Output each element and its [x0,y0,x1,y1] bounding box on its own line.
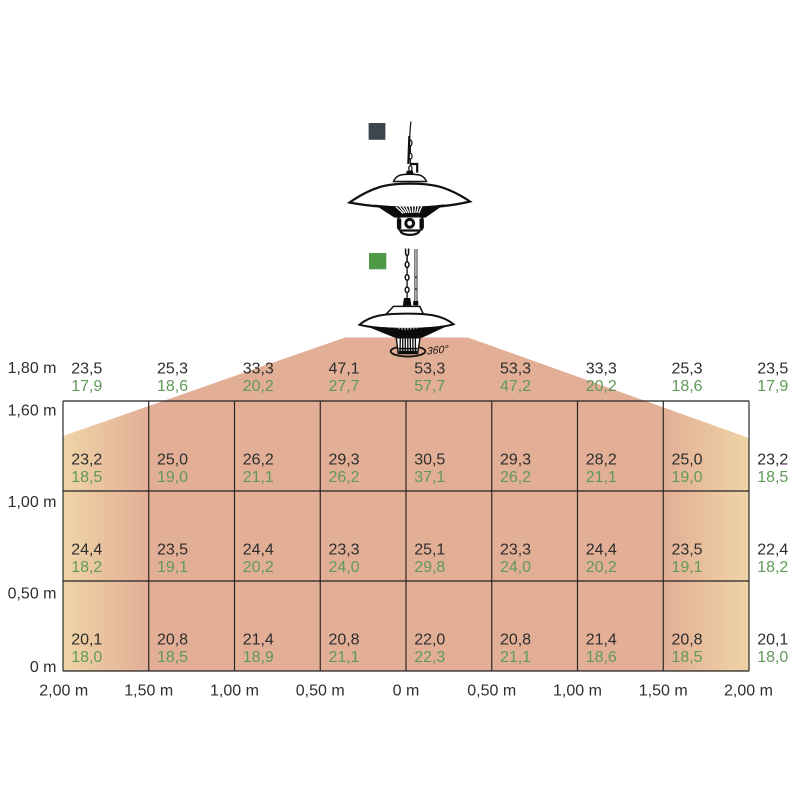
svg-text:23,5: 23,5 [71,361,102,378]
svg-text:18,5: 18,5 [157,649,188,666]
svg-text:21,1: 21,1 [500,649,531,666]
svg-text:20,8: 20,8 [328,632,359,649]
svg-text:27,7: 27,7 [328,378,359,395]
svg-text:19,0: 19,0 [671,469,702,486]
svg-text:53,3: 53,3 [500,361,531,378]
svg-text:23,5: 23,5 [757,361,788,378]
svg-text:57,7: 57,7 [414,378,445,395]
svg-text:2,00 m: 2,00 m [39,683,88,700]
svg-text:20,8: 20,8 [500,632,531,649]
svg-text:19,1: 19,1 [671,559,702,576]
svg-text:18,6: 18,6 [586,649,617,666]
svg-text:47,1: 47,1 [328,361,359,378]
svg-text:0 m: 0 m [393,683,420,700]
svg-text:0,50 m: 0,50 m [467,683,516,700]
svg-text:18,0: 18,0 [71,649,102,666]
svg-text:18,6: 18,6 [157,378,188,395]
svg-text:20,2: 20,2 [586,378,617,395]
svg-text:20,1: 20,1 [71,632,102,649]
svg-text:17,9: 17,9 [71,378,102,395]
svg-text:19,0: 19,0 [157,469,188,486]
svg-text:22,0: 22,0 [414,632,445,649]
svg-text:20,8: 20,8 [671,632,702,649]
svg-text:18,2: 18,2 [757,559,788,576]
svg-text:53,3: 53,3 [414,361,445,378]
svg-text:20,2: 20,2 [243,378,274,395]
svg-text:25,3: 25,3 [157,361,188,378]
svg-text:23,3: 23,3 [500,542,531,559]
svg-text:21,1: 21,1 [586,469,617,486]
svg-text:25,0: 25,0 [157,452,188,469]
svg-text:25,3: 25,3 [671,361,702,378]
svg-text:28,2: 28,2 [586,452,617,469]
svg-text:23,5: 23,5 [157,542,188,559]
svg-text:20,1: 20,1 [757,632,788,649]
svg-text:1,00 m: 1,00 m [210,683,259,700]
svg-text:17,9: 17,9 [757,378,788,395]
svg-text:21,4: 21,4 [243,632,274,649]
svg-text:24,0: 24,0 [500,559,531,576]
svg-text:26,2: 26,2 [328,469,359,486]
svg-text:29,8: 29,8 [414,559,445,576]
svg-text:18,5: 18,5 [71,469,102,486]
svg-text:18,5: 18,5 [757,469,788,486]
svg-text:26,2: 26,2 [243,452,274,469]
svg-text:23,2: 23,2 [757,452,788,469]
svg-text:25,0: 25,0 [671,452,702,469]
svg-text:21,4: 21,4 [586,632,617,649]
svg-text:47,2: 47,2 [500,378,531,395]
svg-text:18,6: 18,6 [671,378,702,395]
svg-text:29,3: 29,3 [328,452,359,469]
svg-text:0 m: 0 m [30,659,57,676]
svg-text:1,60 m: 1,60 m [8,403,57,420]
svg-text:24,4: 24,4 [71,542,102,559]
svg-text:18,9: 18,9 [243,649,274,666]
svg-text:19,1: 19,1 [157,559,188,576]
svg-text:30,5: 30,5 [414,452,445,469]
svg-text:1,50 m: 1,50 m [124,683,173,700]
svg-text:25,1: 25,1 [414,542,445,559]
svg-text:26,2: 26,2 [500,469,531,486]
svg-text:0,50 m: 0,50 m [296,683,345,700]
svg-text:21,1: 21,1 [328,649,359,666]
svg-text:20,2: 20,2 [243,559,274,576]
svg-text:24,4: 24,4 [243,542,274,559]
svg-text:18,5: 18,5 [671,649,702,666]
svg-text:2,00 m: 2,00 m [724,683,773,700]
svg-text:20,2: 20,2 [586,559,617,576]
svg-text:22,4: 22,4 [757,542,788,559]
svg-text:18,0: 18,0 [757,649,788,666]
svg-text:37,1: 37,1 [414,469,445,486]
svg-text:22,3: 22,3 [414,649,445,666]
svg-text:18,2: 18,2 [71,559,102,576]
svg-text:33,3: 33,3 [243,361,274,378]
svg-text:29,3: 29,3 [500,452,531,469]
svg-text:24,4: 24,4 [586,542,617,559]
svg-text:1,80 m: 1,80 m [8,360,57,377]
svg-text:1,00 m: 1,00 m [553,683,602,700]
svg-text:360°: 360° [427,343,449,357]
svg-text:21,1: 21,1 [243,469,274,486]
svg-text:1,00 m: 1,00 m [8,494,57,511]
svg-text:1,50 m: 1,50 m [639,683,688,700]
svg-text:23,2: 23,2 [71,452,102,469]
svg-text:24,0: 24,0 [328,559,359,576]
svg-text:23,5: 23,5 [671,542,702,559]
svg-text:20,8: 20,8 [157,632,188,649]
svg-text:0,50 m: 0,50 m [8,586,57,603]
svg-text:33,3: 33,3 [586,361,617,378]
svg-text:23,3: 23,3 [328,542,359,559]
